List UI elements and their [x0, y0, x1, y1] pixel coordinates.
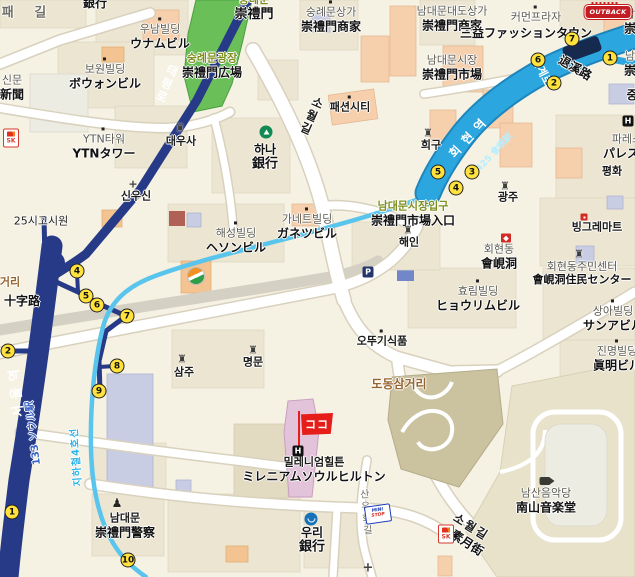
map-base	[0, 0, 635, 577]
hilton-building	[284, 399, 319, 497]
music-hall-building	[545, 424, 607, 526]
map-canvas[interactable]: 패 길銀行우남빌딩ウナムビル보원빌딩ボウォンビル신문新聞YTN타워YTNタワー대…	[0, 0, 635, 577]
